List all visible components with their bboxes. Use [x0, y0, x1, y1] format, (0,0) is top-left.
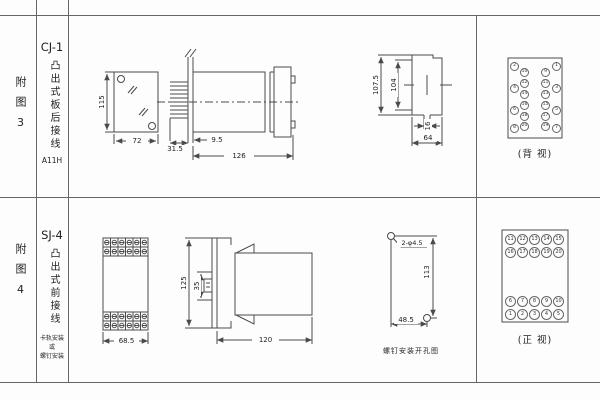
table-rule-col3 — [476, 15, 477, 382]
terminal: 18 — [520, 112, 529, 121]
dimension-sj4-height: 125 — [180, 270, 188, 296]
terminal: 1 — [552, 62, 561, 71]
terminal: 2 — [510, 62, 519, 71]
figure4-mount-line3: 螺钉安装 — [37, 351, 67, 360]
terminal: 6 — [505, 296, 516, 307]
terminal: 15 — [553, 234, 564, 245]
terminal: 6 — [510, 106, 519, 115]
cj1-side-view-drawing — [150, 45, 305, 160]
figure3-row-label: 附图3 — [12, 76, 28, 138]
rear-view-caption: (背 视) — [508, 146, 562, 160]
dimension-hole-vertical: 113 — [423, 261, 431, 283]
terminal: 18 — [529, 247, 540, 258]
dimension-cutout-width: 64 — [419, 134, 437, 142]
table-rule-bottom — [0, 382, 600, 383]
terminal: 4 — [541, 309, 552, 320]
datasheet-page: 附图3 CJ-1 凸出式板后接线 A11H 115 72 31.5 9.5 12… — [0, 0, 600, 400]
dimension-front-width: 72 — [126, 137, 148, 145]
table-rule-col2 — [68, 0, 69, 382]
terminal: 13 — [541, 90, 550, 99]
drill-diagram-caption: 螺钉安装开孔图 — [378, 346, 444, 356]
dimension-pin-length: 31.5 — [163, 145, 187, 153]
terminal: 5 — [552, 106, 561, 115]
terminal: 13 — [529, 234, 540, 245]
terminal: 19 — [541, 122, 550, 131]
terminal: 8 — [510, 124, 519, 133]
terminal: 5 — [553, 309, 564, 320]
terminal: 10 — [553, 296, 564, 307]
terminal: 17 — [517, 247, 528, 258]
dimension-sj4-width: 68.5 — [114, 337, 139, 345]
terminal: 8 — [529, 296, 540, 307]
terminal: 14 — [520, 90, 529, 99]
table-rule-top — [0, 15, 600, 16]
figure4-mount-line1: 卡轨安装 — [37, 333, 67, 342]
terminal: 12 — [517, 234, 528, 245]
terminal: 7 — [517, 296, 528, 307]
dimension-cutout-outer: 107.5 — [372, 72, 380, 98]
terminal: 3 — [552, 84, 561, 93]
terminal: 3 — [529, 309, 540, 320]
figure3-model-label: CJ-1 — [36, 40, 68, 54]
terminal: 11 — [505, 234, 516, 245]
dimension-body-length: 126 — [224, 152, 254, 160]
dimension-cutout-inner: 104 — [390, 73, 398, 97]
dimension-cutout-tab: 16 — [424, 119, 432, 133]
terminal: 7 — [552, 124, 561, 133]
terminal: 16 — [505, 247, 516, 258]
terminal: 19 — [541, 247, 552, 258]
figure4-type-label: 凸出式前接线 — [46, 248, 61, 326]
table-rule-middle — [0, 197, 600, 198]
dimension-front-height: 115 — [98, 92, 106, 112]
sj4-front-view-drawing — [90, 225, 165, 350]
front-view-caption: (正 视) — [502, 332, 568, 346]
terminal: 14 — [541, 234, 552, 245]
dimension-din-rail: 35 — [193, 276, 201, 296]
figure4-mount-line2: 或 — [37, 342, 67, 351]
terminal: 9 — [541, 296, 552, 307]
terminal: 12 — [520, 79, 529, 88]
dimension-sj4-depth: 120 — [252, 336, 279, 344]
figure3-type-label: 凸出式板后接线 — [46, 60, 61, 151]
terminal: 10 — [520, 68, 529, 77]
terminal: 17 — [541, 112, 550, 121]
dimension-plate-offset: 9.5 — [208, 136, 226, 144]
terminal: 16 — [520, 101, 529, 110]
terminal: 20 — [520, 122, 529, 131]
terminal: 11 — [541, 79, 550, 88]
terminal: 20 — [553, 247, 564, 258]
figure4-row-label: 附图4 — [12, 243, 28, 305]
figure3-case-code: A11H — [36, 156, 68, 165]
terminal: 9 — [541, 68, 550, 77]
terminal: 1 — [505, 309, 516, 320]
dimension-hole-horizontal: 48.5 — [394, 316, 418, 324]
table-rule-col1 — [36, 0, 37, 382]
terminal: 15 — [541, 101, 550, 110]
terminal: 4 — [510, 84, 519, 93]
dimension-hole-spec: 2-φ4.5 — [397, 239, 427, 247]
terminal: 2 — [517, 309, 528, 320]
figure4-model-label: SJ-4 — [36, 228, 68, 242]
